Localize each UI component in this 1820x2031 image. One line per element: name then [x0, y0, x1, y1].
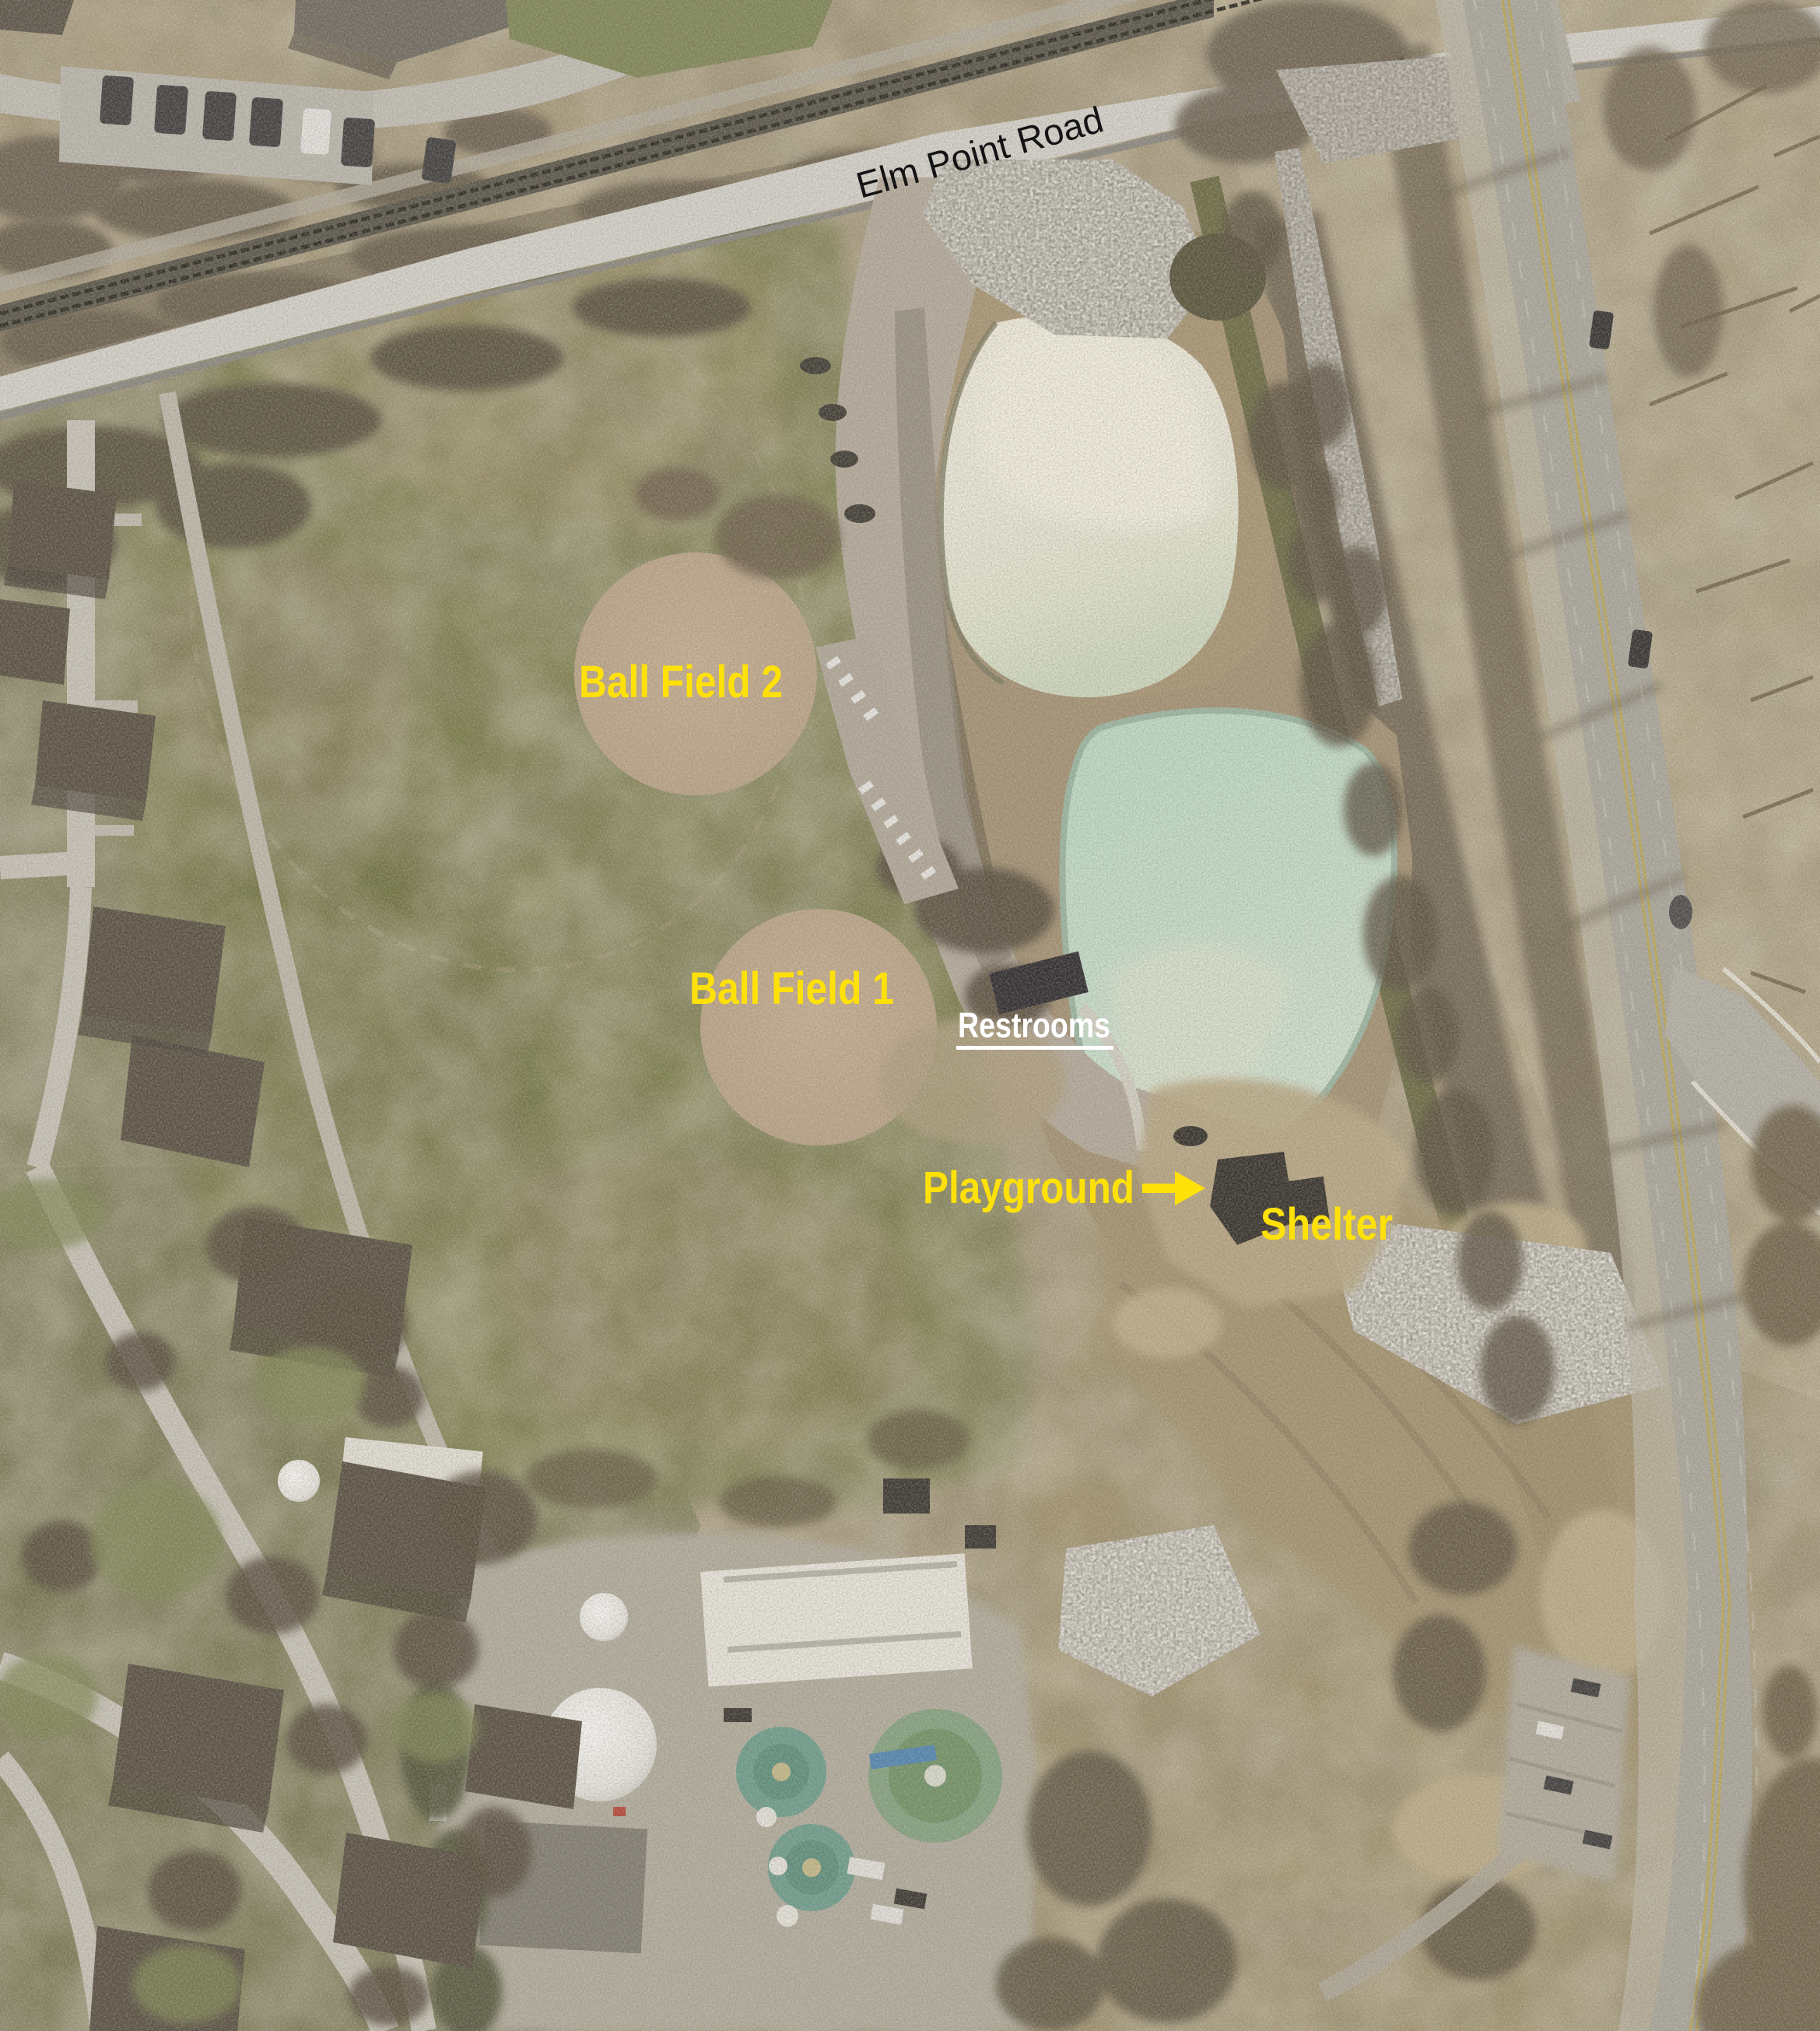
- svg-text:Restrooms: Restrooms: [958, 1005, 1110, 1045]
- svg-text:Playground: Playground: [923, 1163, 1134, 1213]
- svg-text:Ball Field 1: Ball Field 1: [689, 963, 894, 1014]
- svg-text:Shelter: Shelter: [1261, 1199, 1393, 1250]
- svg-text:Ball Field 2: Ball Field 2: [579, 657, 783, 707]
